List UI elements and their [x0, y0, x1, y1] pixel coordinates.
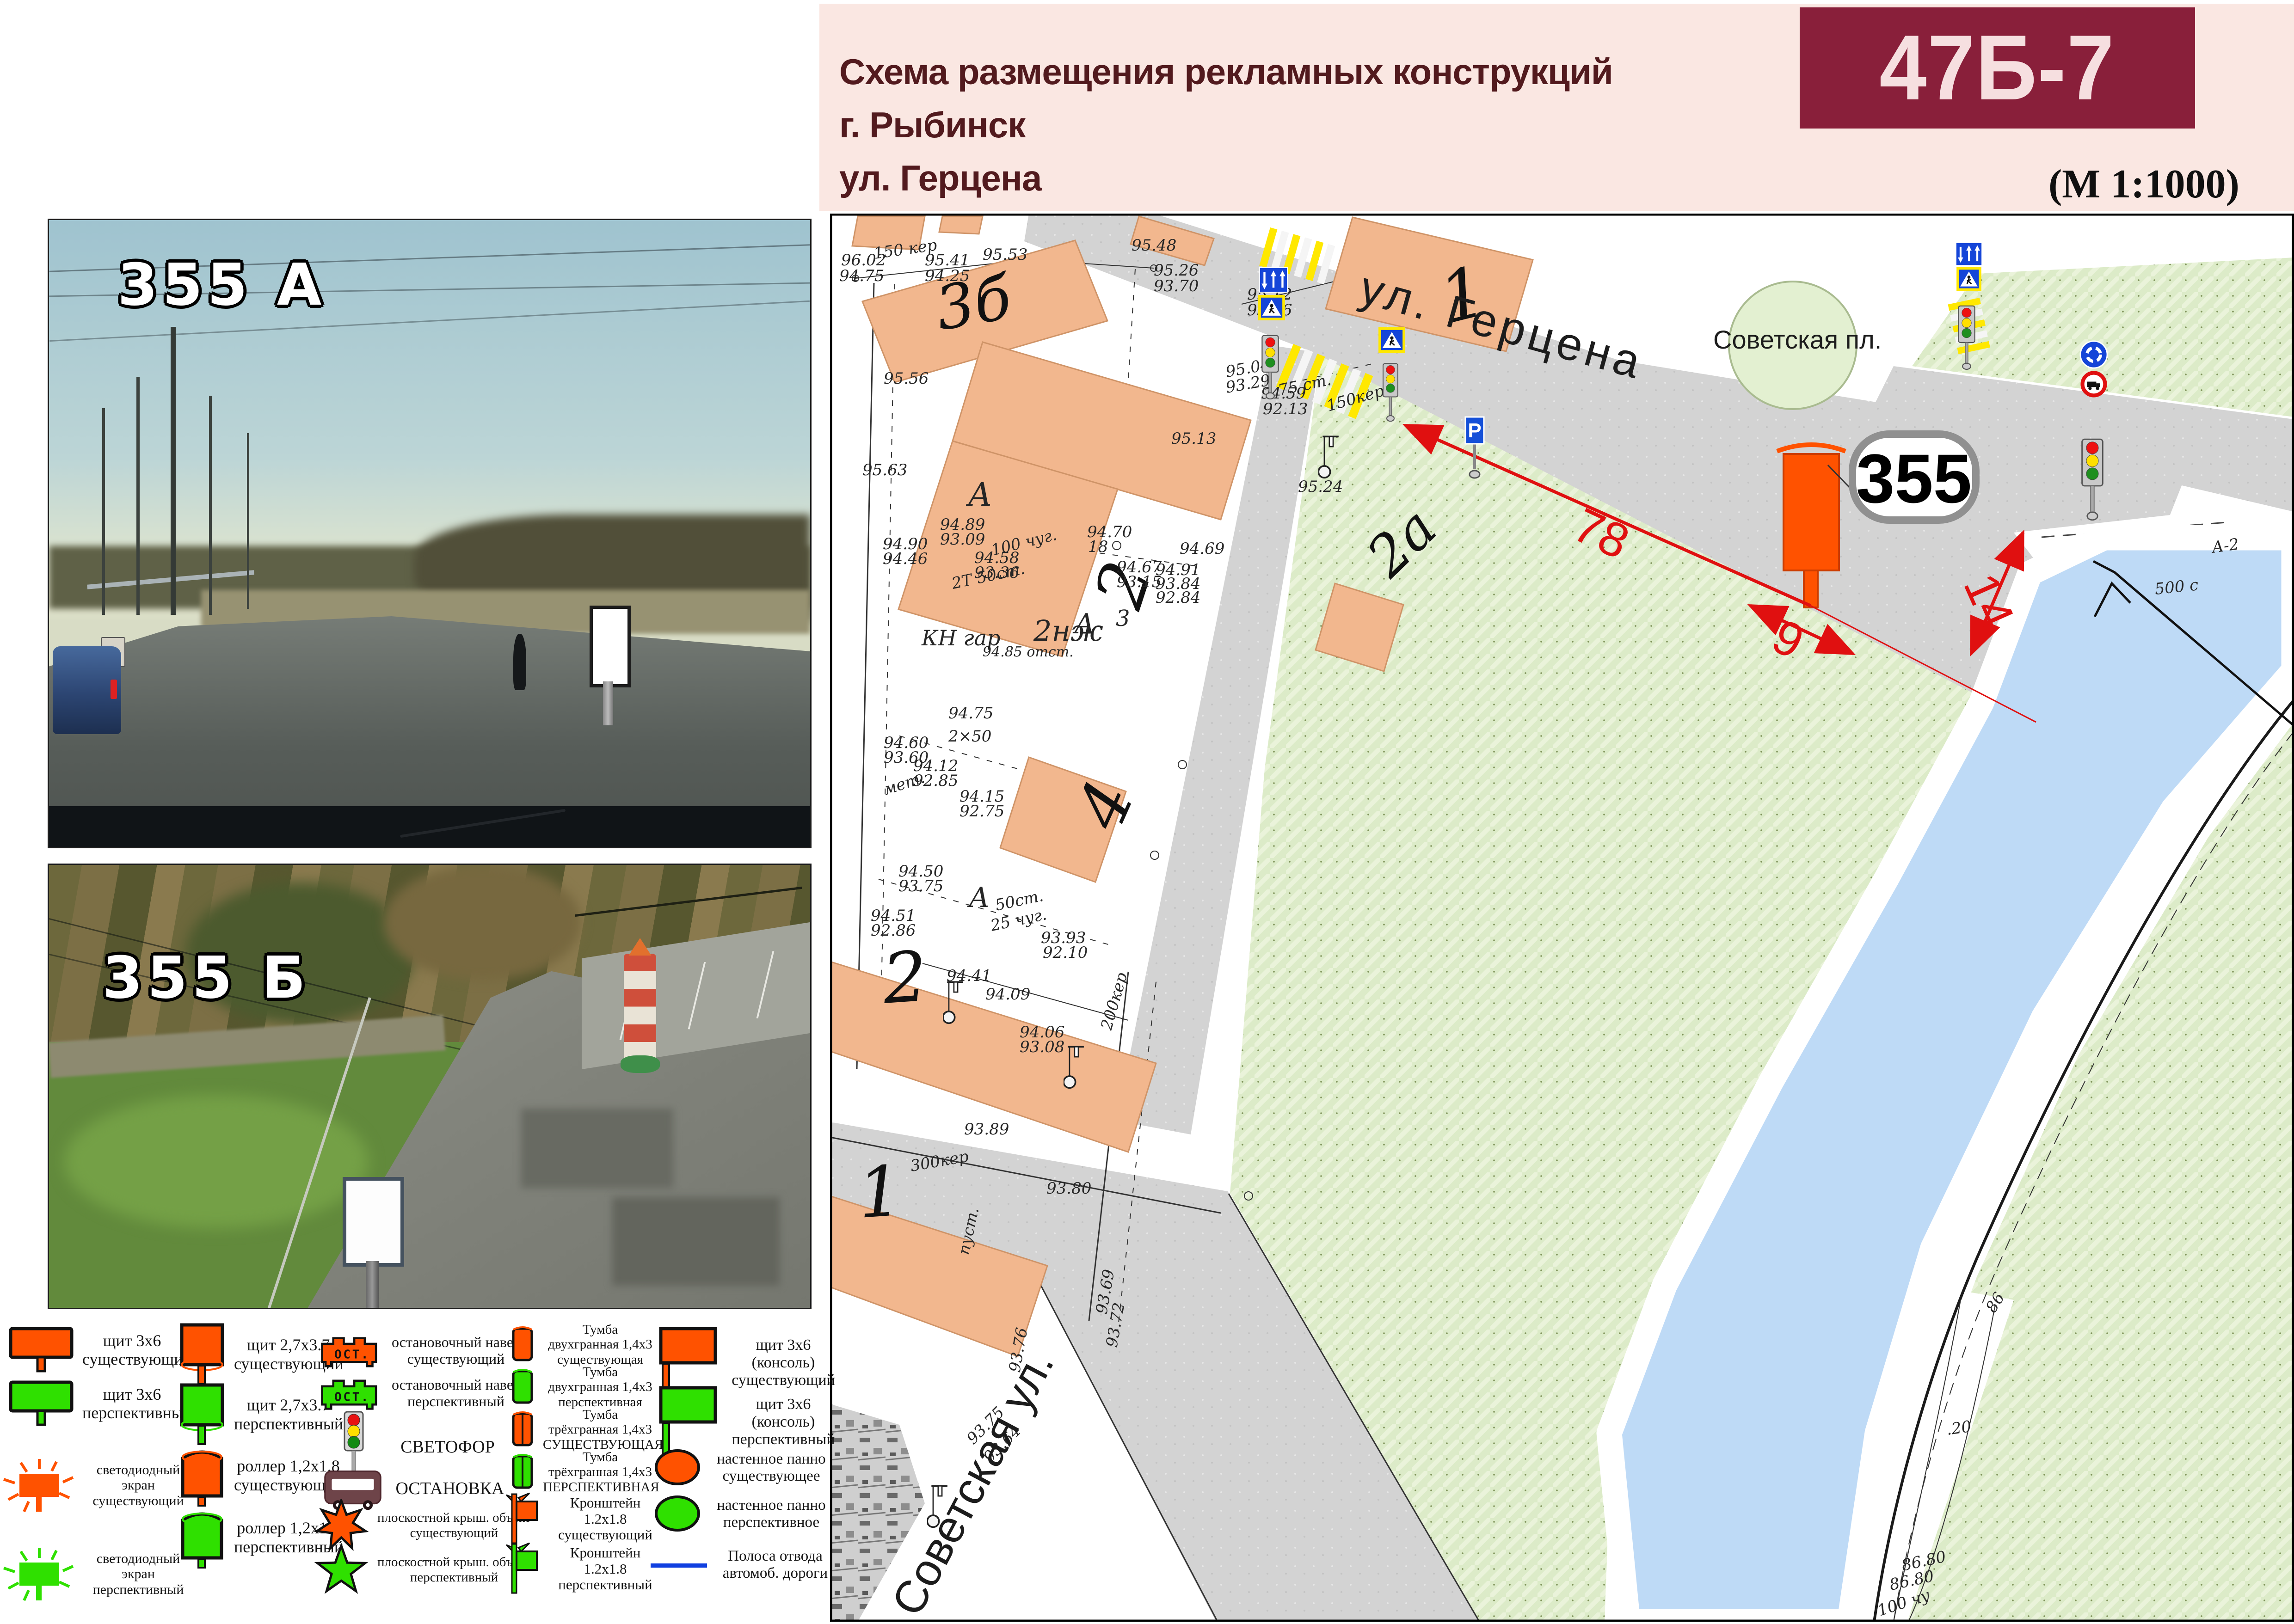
- legend-icon-box: [505, 1491, 543, 1547]
- topo-label: 95.56: [884, 369, 929, 388]
- citylight-pole: [366, 1261, 379, 1309]
- legend-item-label: Полоса отвода автомоб. дороги: [716, 1548, 834, 1582]
- legend-icon-box: ОСТ.: [320, 1328, 385, 1374]
- light-pole: [209, 396, 212, 615]
- legend-item: Тумба трёхгранная 1,4х3 ПЕРСПЕКТИВНАЯ: [509, 1450, 658, 1495]
- line-blue-icon: [649, 1558, 709, 1572]
- legend-icon-box: [0, 1455, 76, 1515]
- tower-base: [621, 1055, 660, 1073]
- legend-item-label: СВЕТОФОР: [387, 1437, 508, 1457]
- billboard-355-icon: [1784, 454, 1839, 570]
- legend-icon-box: [509, 1452, 536, 1492]
- roller-g-icon: [179, 1506, 225, 1569]
- topo-label: А-2: [2210, 535, 2240, 557]
- legend-icon-box: [6, 1327, 76, 1373]
- tumba2-o-icon: [510, 1325, 535, 1365]
- legend-item: щит 3х6 существующий: [6, 1327, 182, 1373]
- topo-label: 92.85: [913, 772, 958, 790]
- topo-label: 92.86: [871, 921, 916, 940]
- tumba3-o-icon: [510, 1410, 535, 1450]
- legend-icon-box: [509, 1367, 536, 1407]
- legend-item: ОСТ.остановочный навес перспективный: [320, 1370, 521, 1416]
- square-label-sovetskaya: Советская пл.: [1713, 325, 1882, 354]
- badge-355-number: 355: [1856, 440, 1972, 517]
- legend-item-label: Тумба трёхгранная 1,4х3 ПЕРСПЕКТИВНАЯ: [543, 1450, 658, 1495]
- panel-g-icon: [179, 1383, 225, 1446]
- legend-icon-box: [650, 1494, 705, 1533]
- wet-patch: [612, 1197, 780, 1286]
- topo-label: 94.25: [925, 267, 970, 285]
- photo-b: 355 Б: [48, 864, 812, 1309]
- topo-label: 95.63: [862, 461, 907, 479]
- legend-item-label: ОСТАНОВКА: [389, 1479, 510, 1499]
- parking-line: [756, 951, 775, 1018]
- tumba3-g-icon: [510, 1452, 535, 1492]
- roller-o-icon: [179, 1444, 225, 1507]
- decorative-tower: [624, 954, 657, 1065]
- legend-icon-box: [6, 1380, 76, 1427]
- parking-line: [688, 962, 706, 1029]
- topo-label: А: [966, 476, 992, 514]
- site-plan-map: 13б24212а 95.4194.2596.0294.75150 кер95.…: [830, 214, 2294, 1622]
- topo-label: 92.13: [1263, 400, 1308, 418]
- legend-icon-box: [647, 1558, 710, 1572]
- legend-item-label: Тумба трёхгранная 1,4х3 СУЩЕСТВУЮЩАЯ: [543, 1407, 658, 1452]
- led-o-icon: [0, 1455, 76, 1515]
- topo-label: 94.75: [948, 704, 993, 723]
- legend-item: ОСТ.остановочный навес существующий: [320, 1328, 521, 1374]
- topo-label: 93.15: [1117, 573, 1162, 591]
- legend-item: Тумба двухгранная 1,4х3 перспективная: [509, 1365, 658, 1410]
- building: [939, 216, 983, 234]
- pedestrian: [513, 634, 526, 690]
- legend-item-label: Тумба двухгранная 1,4х3 перспективная: [543, 1365, 658, 1410]
- sheet-code: 47Б-7: [1880, 15, 2116, 121]
- legend-item: Тумба двухгранная 1,4х3 существующая: [509, 1322, 658, 1367]
- topo-label: 94.46: [883, 550, 928, 568]
- legend-icon-box: [0, 1544, 76, 1604]
- scheme-page: { "header": { "title_line1": "Схема разм…: [0, 0, 2294, 1622]
- topo-label: А: [967, 882, 990, 914]
- topo-label: 93.80: [1046, 1179, 1091, 1198]
- legend-item: щит 3х6 перспективный: [6, 1380, 182, 1427]
- legend-item-label: щит 3х6 (консоль) перспективный: [726, 1396, 841, 1448]
- legend-item: светодиодный экран существующий: [0, 1455, 194, 1515]
- grass-light: [64, 1095, 369, 1228]
- topo-label: 93.75: [898, 877, 943, 895]
- topo-label: 3: [1116, 606, 1130, 631]
- topo-label: 95.48: [1132, 236, 1176, 255]
- map-scale: (М 1:1000): [2048, 161, 2289, 208]
- panno-g-icon: [653, 1494, 702, 1533]
- building-number: 1: [855, 1151, 904, 1234]
- page-title: Схема размещения рекламных конструкций г…: [839, 45, 1764, 205]
- ost-o-icon: ОСТ.: [320, 1328, 385, 1374]
- legend-item-label: остановочный навес существующий: [391, 1334, 521, 1367]
- star-g-icon: [314, 1543, 369, 1596]
- legend-item: плоскостной крыш. объект перспективный: [314, 1543, 533, 1596]
- light-pole: [102, 408, 105, 615]
- photo-a: 355 А: [48, 219, 812, 848]
- title-line1: Схема размещения рекламных конструкций: [839, 45, 1764, 98]
- topo-label: 18: [1088, 538, 1108, 556]
- legend-icon-box: [177, 1444, 228, 1507]
- legend: щит 3х6 существующийщит 3х6 перспективны…: [0, 1313, 829, 1622]
- legend-item-label: настенное панно перспективное: [712, 1497, 831, 1531]
- topo-label: 95.24: [1298, 478, 1343, 496]
- legend-item: щит 2,7х3.7 перспективный: [177, 1383, 343, 1446]
- legend-icon-box: [177, 1383, 228, 1446]
- legend-item: Полоса отвода автомоб. дороги: [647, 1548, 834, 1582]
- legend-item: Кронштейн 1.2х1.8 перспективный: [505, 1541, 661, 1597]
- legend-item-label: Тумба двухгранная 1,4х3 существующая: [543, 1322, 658, 1367]
- topo-label: 93.70: [1154, 277, 1199, 295]
- legend-item-label: Кронштейн 1.2х1.8 перспективный: [549, 1545, 661, 1593]
- topo-label: 94.75: [839, 267, 884, 285]
- billboard-g-icon: [9, 1380, 74, 1427]
- led-g-icon: [0, 1544, 76, 1604]
- wiper: [400, 809, 566, 838]
- legend-item: светодиодный экран перспективный: [0, 1544, 194, 1604]
- topo-label: .20: [1945, 1417, 1973, 1439]
- legend-item: Тумба трёхгранная 1,4х3 СУЩЕСТВУЮЩАЯ: [509, 1407, 658, 1452]
- legend-icon-box: ОСТ.: [320, 1370, 385, 1416]
- legend-item: щит 2,7х3.7 существующий: [177, 1323, 343, 1385]
- car-taillight: [111, 680, 117, 699]
- topo-label: 95.13: [1171, 429, 1216, 448]
- tumba2-g-icon: [510, 1367, 535, 1407]
- legend-item: роллер 1,2х1.8 существующий: [177, 1444, 343, 1507]
- bracket-o-icon: [506, 1491, 541, 1547]
- topo-label: 95.53: [983, 245, 1027, 264]
- legend-item-label: щит 3х6 (консоль) существующий: [726, 1336, 841, 1389]
- light-pole: [171, 327, 176, 615]
- bracket-g-icon: [506, 1541, 541, 1597]
- legend-item: настенное панно перспективное: [650, 1494, 831, 1533]
- legend-icon-box: [177, 1323, 228, 1385]
- panel-o-icon: [179, 1323, 225, 1385]
- sheet-code-badge: 47Б-7: [1800, 7, 2195, 129]
- legend-icon-box: [509, 1410, 536, 1450]
- citylight-mockup: [343, 1177, 404, 1266]
- tree-blob: [384, 865, 582, 980]
- light-pole: [247, 433, 249, 609]
- topo-label: 92.75: [959, 802, 1004, 821]
- topo-label: А: [1072, 608, 1095, 640]
- svg-text:ОСТ.: ОСТ.: [334, 1348, 370, 1362]
- topo-label: 92.10: [1043, 944, 1088, 962]
- topo-label: 94.09: [985, 985, 1030, 1004]
- billboard-pole: [603, 681, 613, 725]
- svg-text:P: P: [1468, 419, 1481, 442]
- title-line3: ул. Герцена: [839, 152, 1764, 205]
- svg-text:ОСТ.: ОСТ.: [334, 1391, 370, 1404]
- ost-g-icon: ОСТ.: [320, 1370, 385, 1416]
- legend-item-label: Кронштейн 1.2х1.8 существующий: [549, 1495, 661, 1543]
- legend-item-label: остановочный навес перспективный: [391, 1377, 521, 1410]
- topo-label: 92.84: [1156, 588, 1200, 607]
- topo-label: 93.09: [940, 530, 985, 549]
- legend-item: Кронштейн 1.2х1.8 существующий: [505, 1491, 661, 1547]
- billboard-mockup: [590, 606, 631, 687]
- car: [53, 646, 121, 734]
- billboard-o-icon: [9, 1327, 74, 1373]
- legend-icon-box: [650, 1448, 705, 1487]
- photo-b-label: 355 Б: [102, 944, 310, 1011]
- light-pole: [136, 377, 140, 615]
- legend-item-label: настенное панно существующее: [712, 1451, 831, 1485]
- wet-patch: [521, 1109, 673, 1188]
- legend-icon-box: [177, 1506, 228, 1569]
- topo-label: 2×50: [948, 727, 991, 746]
- topo-label: 94.69: [1180, 539, 1224, 558]
- legend-item-label: щит 3х6 перспективный: [82, 1385, 182, 1422]
- legend-icon-box: [509, 1325, 536, 1365]
- photo-a-label: 355 А: [117, 251, 326, 319]
- legend-icon-box: [314, 1543, 369, 1596]
- title-line2: г. Рыбинск: [839, 98, 1764, 152]
- building-number: 2: [879, 937, 929, 1020]
- panno-o-icon: [653, 1448, 702, 1487]
- topo-label: 93.89: [964, 1120, 1009, 1139]
- legend-item: настенное панно существующее: [650, 1448, 831, 1487]
- legend-item-label: щит 3х6 существующий: [82, 1331, 182, 1369]
- legend-icon-box: [505, 1541, 543, 1597]
- topo-label: 93.08: [1020, 1038, 1064, 1056]
- dashboard: [49, 806, 810, 847]
